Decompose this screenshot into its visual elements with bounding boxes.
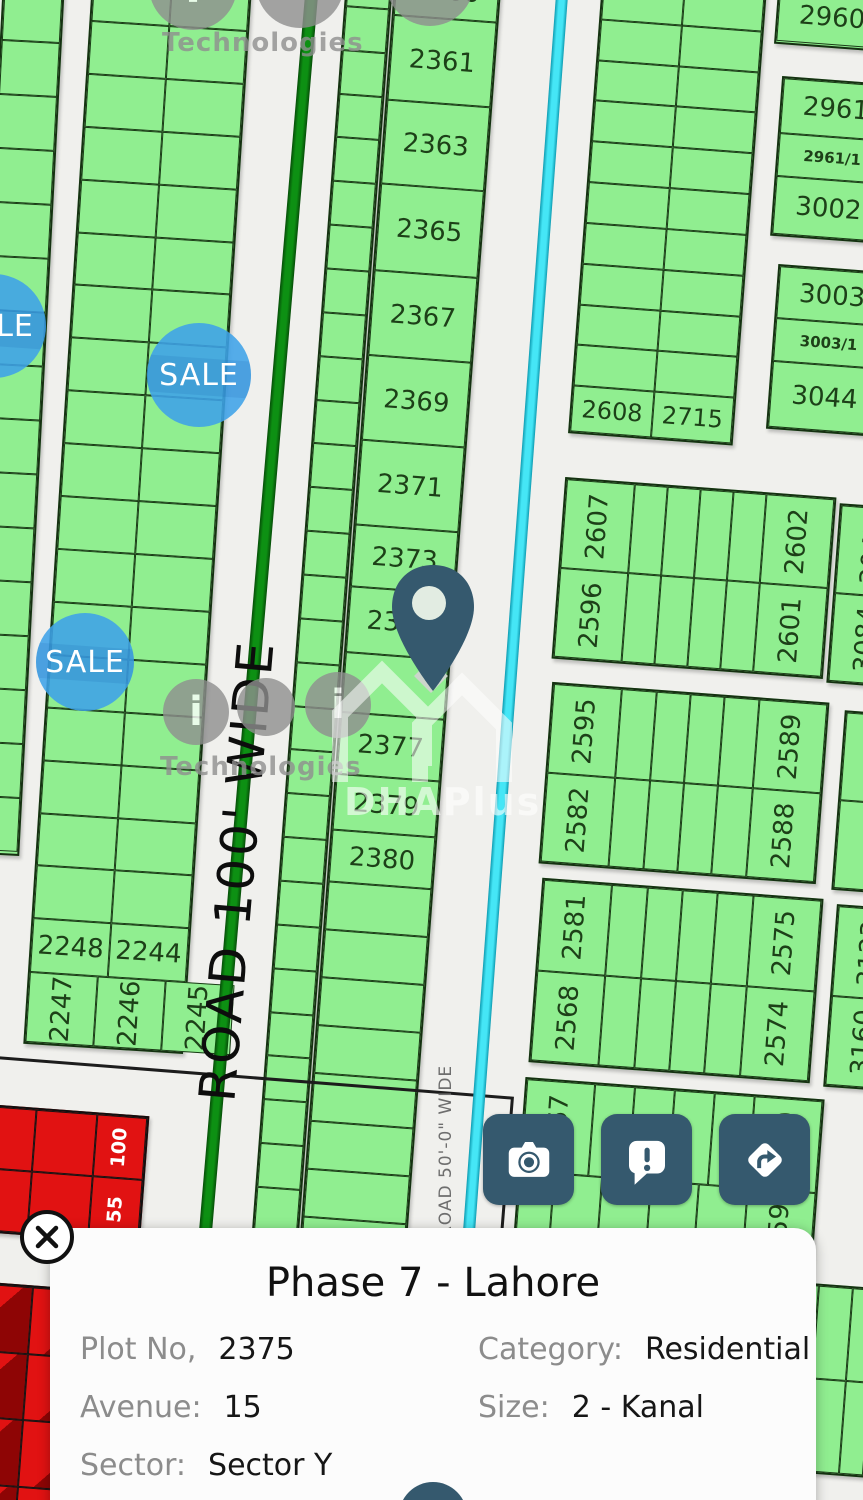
plot-cell[interactable] <box>340 50 386 97</box>
plot-cell[interactable] <box>660 270 743 317</box>
plot-cell[interactable] <box>44 707 125 765</box>
plot-cell[interactable] <box>325 881 431 937</box>
plot-cell[interactable] <box>135 501 216 559</box>
plot-cell[interactable]: 2574 <box>740 986 815 1081</box>
plot-label: 2960 <box>798 2 863 33</box>
plot-cell[interactable] <box>577 304 660 351</box>
plot-label: 2601 <box>775 596 806 664</box>
plot-label: 2574 <box>762 1000 793 1068</box>
plot-label: 2363 <box>402 130 470 161</box>
plot-cell[interactable] <box>663 229 746 276</box>
card-title: Phase 7 - Lahore <box>50 1260 816 1306</box>
plot-cell[interactable] <box>162 79 243 137</box>
plot-label: 2369 <box>382 386 450 417</box>
plot-cell[interactable] <box>589 141 672 188</box>
plot-cell[interactable] <box>88 21 169 79</box>
plot-cell[interactable] <box>586 182 669 229</box>
plot-block: 2595258925822588 <box>539 682 830 884</box>
plot-cell[interactable] <box>159 132 240 190</box>
plot-cell[interactable]: 3044 <box>768 361 863 435</box>
plot-cell[interactable] <box>81 126 162 184</box>
plot-cell[interactable]: 2602 <box>760 494 835 588</box>
plot-label: 2379 <box>352 790 420 821</box>
plot-cell[interactable]: 2367 <box>368 270 477 362</box>
map-pin-icon[interactable] <box>388 563 478 695</box>
plot-cell[interactable] <box>139 448 220 506</box>
plot-cell[interactable] <box>0 579 32 636</box>
plot-cell[interactable]: 2379 <box>333 774 440 838</box>
plot-cell[interactable] <box>0 525 34 582</box>
plot-cell[interactable] <box>57 496 138 554</box>
plot-cell[interactable]: 3003 <box>776 266 863 326</box>
plot-cell[interactable] <box>293 662 339 709</box>
plot-cell[interactable] <box>583 223 666 270</box>
plot-cell[interactable] <box>343 6 389 53</box>
plot-cell[interactable] <box>0 202 51 259</box>
plot-label: 2248 <box>37 933 105 963</box>
plot-cell[interactable]: 2363 <box>381 100 490 191</box>
plot-cell[interactable] <box>0 40 60 97</box>
plot-cell[interactable]: 2361 <box>387 15 496 107</box>
plot-label: 3084 <box>850 606 863 674</box>
plot-label: 2589 <box>775 712 806 780</box>
directions-icon <box>737 1132 793 1188</box>
report-button[interactable] <box>601 1114 692 1205</box>
plot-label: 2581 <box>559 894 590 962</box>
camera-button[interactable] <box>483 1114 574 1205</box>
plot-cell[interactable] <box>598 19 681 66</box>
map-screen: 2248224422472246224523602361236323652367… <box>0 0 863 1500</box>
plot-cell[interactable] <box>54 549 135 607</box>
plot-cell[interactable]: 2595 <box>547 684 622 778</box>
plot-info-card: Phase 7 - Lahore Plot No, 2375 Category:… <box>50 1228 816 1500</box>
plot-cell[interactable] <box>314 1025 420 1081</box>
plot-label: 2568 <box>553 984 584 1052</box>
plot-cell[interactable] <box>61 443 142 501</box>
plot-cell[interactable]: 2608 <box>570 386 654 438</box>
plot-label: 2377 <box>357 731 425 762</box>
plot-cell[interactable] <box>574 345 657 392</box>
plot-cell[interactable] <box>0 471 37 528</box>
plot-label: 3003 <box>798 281 863 312</box>
plot-cell[interactable] <box>40 760 121 818</box>
plot-label: 3045 <box>857 518 863 586</box>
plot-label: 2582 <box>563 786 594 854</box>
plot-cell[interactable]: 2365 <box>375 183 484 277</box>
sale-label: SALE <box>0 309 34 344</box>
field-avenue: Avenue: 15 <box>80 1390 478 1425</box>
plot-cell[interactable]: 2960 <box>776 0 863 49</box>
plot-cell[interactable]: 3045 <box>835 505 863 598</box>
plot-cell[interactable]: 2596 <box>554 568 629 662</box>
plot-cell[interactable]: 3123 <box>832 906 863 1000</box>
plot-label: 2371 <box>376 470 444 501</box>
plot-label: 2715 <box>661 403 724 432</box>
field-size: Size: 2 - Kanal <box>478 1390 810 1425</box>
plot-cell[interactable] <box>166 26 247 84</box>
plot-block: 2607260225962601 <box>552 477 837 679</box>
plot-block: 29612961/13002 <box>770 76 863 244</box>
plot-cell[interactable] <box>85 74 166 132</box>
field-category: Category: Residential <box>478 1332 810 1367</box>
card-fields: Plot No, 2375 Category: Residential Aven… <box>50 1332 816 1483</box>
plot-cell[interactable] <box>657 310 740 357</box>
plot-cell[interactable] <box>111 871 192 929</box>
plot-cell[interactable] <box>74 232 155 290</box>
plot-cell[interactable]: 2369 <box>362 355 471 447</box>
field-sector: Sector: Sector Y <box>80 1448 478 1483</box>
plot-cell[interactable] <box>840 712 863 803</box>
plot-cell[interactable] <box>333 137 379 184</box>
directions-button[interactable] <box>719 1114 810 1205</box>
plot-cell[interactable] <box>122 712 203 770</box>
plot-cell[interactable] <box>322 929 428 985</box>
plot-cell[interactable] <box>303 531 349 578</box>
field-label: Sector: <box>80 1448 186 1483</box>
plot-cell[interactable]: 3160 <box>825 995 863 1089</box>
plot-cell[interactable]: 2582 <box>541 773 616 867</box>
plot-cell[interactable] <box>64 390 145 448</box>
plot-label: 2607 <box>582 492 613 560</box>
camera-icon <box>502 1133 556 1187</box>
sale-badge[interactable]: SALE <box>36 613 134 711</box>
plot-cell[interactable] <box>669 147 752 194</box>
plot-cell[interactable] <box>323 268 369 315</box>
road-50-wide-label: ROAD 50'-0" WIDE <box>436 1018 456 1238</box>
plot-label: 3002 <box>794 194 862 225</box>
plot-cell[interactable]: 2248 <box>30 918 111 977</box>
plot-cell[interactable]: 2581 <box>537 880 612 975</box>
field-plot-no: Plot No, 2375 <box>80 1332 478 1367</box>
sale-label: SALE <box>159 358 239 393</box>
map-action-buttons <box>483 1114 810 1205</box>
plot-cell[interactable] <box>274 924 320 971</box>
plot-label: 2961 <box>802 94 863 125</box>
field-value: 15 <box>224 1390 262 1425</box>
plot-label: 2360 <box>413 0 481 7</box>
plot-cell[interactable]: 2380 <box>329 830 436 890</box>
plot-cell[interactable] <box>277 881 323 928</box>
plot-cell[interactable] <box>0 94 57 151</box>
field-value: 2 - Kanal <box>572 1390 704 1425</box>
plot-cell[interactable]: 2961 <box>780 78 863 141</box>
field-label: Plot No, <box>80 1332 196 1367</box>
plot-cell[interactable]: 2575 <box>747 896 822 991</box>
plot-cell[interactable] <box>678 25 761 72</box>
plot-cell[interactable] <box>313 400 359 447</box>
plot-cell[interactable]: 2601 <box>753 583 828 677</box>
plot-label: 2247 <box>47 975 77 1043</box>
plot-cell[interactable]: 2246 <box>93 977 166 1051</box>
plot-cell[interactable] <box>0 795 20 852</box>
plot-cell[interactable]: 2247 <box>25 972 98 1046</box>
field-label: Size: <box>478 1390 550 1425</box>
plot-cell[interactable] <box>320 312 366 359</box>
plot-block <box>831 710 863 893</box>
plot-cell[interactable] <box>270 968 316 1015</box>
plot-cell[interactable] <box>0 741 23 798</box>
plot-block: 10055 <box>0 1094 149 1244</box>
plot-cell[interactable] <box>0 148 54 205</box>
plot-block: 31233160 <box>823 904 863 1091</box>
plot-label: 2575 <box>769 909 800 977</box>
plot-cell[interactable] <box>32 1110 97 1176</box>
plot-cell[interactable] <box>592 101 675 148</box>
plot-cell[interactable] <box>128 607 209 665</box>
plot-cell[interactable] <box>307 487 353 534</box>
plot-cell[interactable] <box>595 60 678 107</box>
plot-label: 100 <box>109 1127 131 1168</box>
plot-cell[interactable] <box>0 633 29 690</box>
plot-label: 2380 <box>348 844 416 875</box>
plot-cell[interactable] <box>33 866 114 924</box>
plot-cell[interactable] <box>280 837 326 884</box>
plot-cell[interactable] <box>284 793 330 840</box>
plot-cell[interactable] <box>666 188 749 235</box>
plot-cell[interactable] <box>290 706 336 753</box>
plot-cell[interactable]: 2568 <box>531 970 606 1065</box>
plot-label: 3123 <box>854 919 863 987</box>
plot-cell[interactable] <box>297 618 343 665</box>
plot-cell[interactable] <box>287 749 333 796</box>
plot-cell[interactable] <box>125 659 206 717</box>
close-card-button[interactable] <box>20 1210 74 1264</box>
plot-cell[interactable] <box>672 107 755 154</box>
plot-cell[interactable]: 2588 <box>746 788 821 882</box>
plot-cell[interactable] <box>310 443 356 490</box>
plot-label: 2602 <box>782 507 813 575</box>
field-value: Residential <box>645 1332 810 1367</box>
plot-label: 2246 <box>115 980 145 1048</box>
plot-label: 2596 <box>576 581 607 649</box>
plot-cell[interactable] <box>68 338 149 396</box>
plot-cell[interactable]: 2371 <box>356 440 465 532</box>
report-bubble-icon <box>620 1133 674 1187</box>
plot-cell[interactable] <box>833 800 863 891</box>
plot-label: 2367 <box>389 301 457 332</box>
plot-cell[interactable]: 3002 <box>772 176 863 242</box>
plot-cell[interactable] <box>115 818 196 876</box>
sale-badge[interactable]: SALE <box>147 323 251 427</box>
plot-cell[interactable] <box>317 356 363 403</box>
plot-cell[interactable]: 2589 <box>753 699 828 793</box>
plot-label: 2595 <box>569 697 600 765</box>
plot-label: 2244 <box>115 938 183 968</box>
plot-label: 2608 <box>581 397 644 426</box>
plot-cell[interactable] <box>654 351 737 398</box>
plot-cell[interactable] <box>2 0 63 43</box>
plot-cell[interactable] <box>78 179 159 237</box>
plot-label: 2961/1 <box>803 149 862 168</box>
field-label: Avenue: <box>80 1390 202 1425</box>
watermark-logo-circle <box>256 0 344 28</box>
plot-label: 2588 <box>768 801 799 869</box>
plot-cell[interactable] <box>118 765 199 823</box>
plot-cell[interactable]: 2244 <box>108 923 189 982</box>
plot-cell[interactable] <box>326 225 372 272</box>
plot-cell[interactable] <box>156 184 237 242</box>
plot-cell[interactable] <box>0 417 40 474</box>
plot-cell[interactable] <box>580 263 663 310</box>
plot-cell[interactable]: 2607 <box>560 479 635 573</box>
field-value: Sector Y <box>208 1448 332 1483</box>
sale-label: SALE <box>45 645 125 680</box>
plot-cell[interactable] <box>132 554 213 612</box>
plot-cell[interactable] <box>330 181 376 228</box>
plot-cell[interactable] <box>267 1012 313 1059</box>
plot-cell[interactable]: 2377 <box>337 712 444 782</box>
plot-block: 26082715 <box>568 0 767 446</box>
plot-cell[interactable]: 100 <box>92 1114 147 1180</box>
field-label: Category: <box>478 1332 623 1367</box>
plot-cell[interactable] <box>336 93 382 140</box>
plot-cell[interactable] <box>0 687 26 744</box>
plot-label: 2365 <box>395 215 463 246</box>
plot-label: 3003/1 <box>799 334 858 353</box>
plot-label: 2361 <box>408 46 476 77</box>
plot-label: 55 <box>105 1195 126 1223</box>
plot-cell[interactable] <box>318 977 424 1033</box>
plot-label: 3044 <box>790 383 858 414</box>
plot-block: 2581257525682574 <box>528 878 823 1084</box>
plot-block: 2960 <box>774 0 863 52</box>
plot-cell[interactable] <box>152 237 233 295</box>
field-value: 2375 <box>218 1332 294 1367</box>
plot-cell[interactable]: 2715 <box>650 392 734 444</box>
plot-cell[interactable] <box>300 575 346 622</box>
plot-label: 3160 <box>847 1009 863 1077</box>
plot-cell[interactable] <box>0 1105 37 1171</box>
plot-cell[interactable]: 3084 <box>828 593 863 686</box>
plot-cell[interactable] <box>37 813 118 871</box>
plot-cell[interactable] <box>675 66 758 113</box>
plot-cell[interactable] <box>71 285 152 343</box>
close-icon <box>32 1222 62 1252</box>
plot-block: 30033003/13044 <box>766 264 863 437</box>
